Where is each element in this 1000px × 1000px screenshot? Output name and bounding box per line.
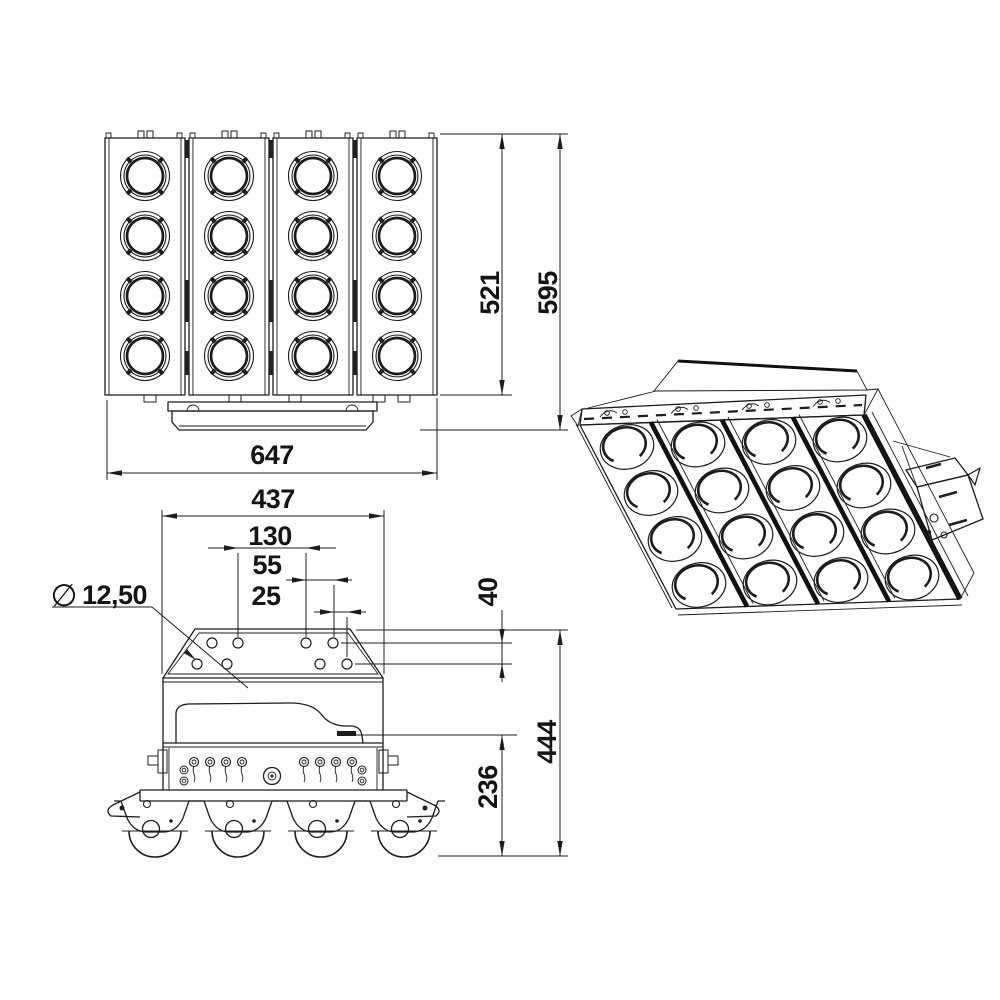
diameter-symbol: ∅ <box>50 578 77 613</box>
front-view <box>105 131 437 430</box>
dim-hole-offset-small: 25 <box>251 581 281 611</box>
front-lens-grid <box>121 152 422 381</box>
iso-mounting-rail <box>571 395 866 426</box>
top-clips <box>106 131 434 138</box>
dim-front-total-height: 595 <box>533 271 563 315</box>
dim-hole-row-gap: 40 <box>473 577 503 606</box>
iso-lens-face <box>576 412 962 615</box>
technical-drawing-canvas: 647 521 595 <box>0 0 1000 1000</box>
dim-hole-pitch: 130 <box>248 521 292 551</box>
front-panels <box>105 131 437 395</box>
cable-glands <box>180 758 366 786</box>
dim-front-glass-height: 521 <box>475 271 505 315</box>
front-bracket <box>144 395 410 430</box>
dim-side-total-height: 444 <box>532 720 562 764</box>
side-lens-modules <box>108 790 445 857</box>
front-view-dimensions: 647 521 595 <box>107 134 568 480</box>
side-view <box>108 629 445 857</box>
dim-side-lower-height: 236 <box>473 765 503 809</box>
dim-hole-diameter: 12,50 <box>82 580 147 610</box>
drawing-sheet: 647 521 595 <box>0 0 1000 1000</box>
side-housing <box>148 678 398 790</box>
isometric-view <box>571 361 983 615</box>
dim-side-width: 437 <box>251 484 295 514</box>
side-mounting-plate <box>163 629 383 678</box>
dim-front-width: 647 <box>250 440 294 470</box>
side-view-dimensions: 437 130 55 25 ∅ 12,50 <box>50 484 568 856</box>
dim-hole-offset-mid: 55 <box>252 550 282 580</box>
